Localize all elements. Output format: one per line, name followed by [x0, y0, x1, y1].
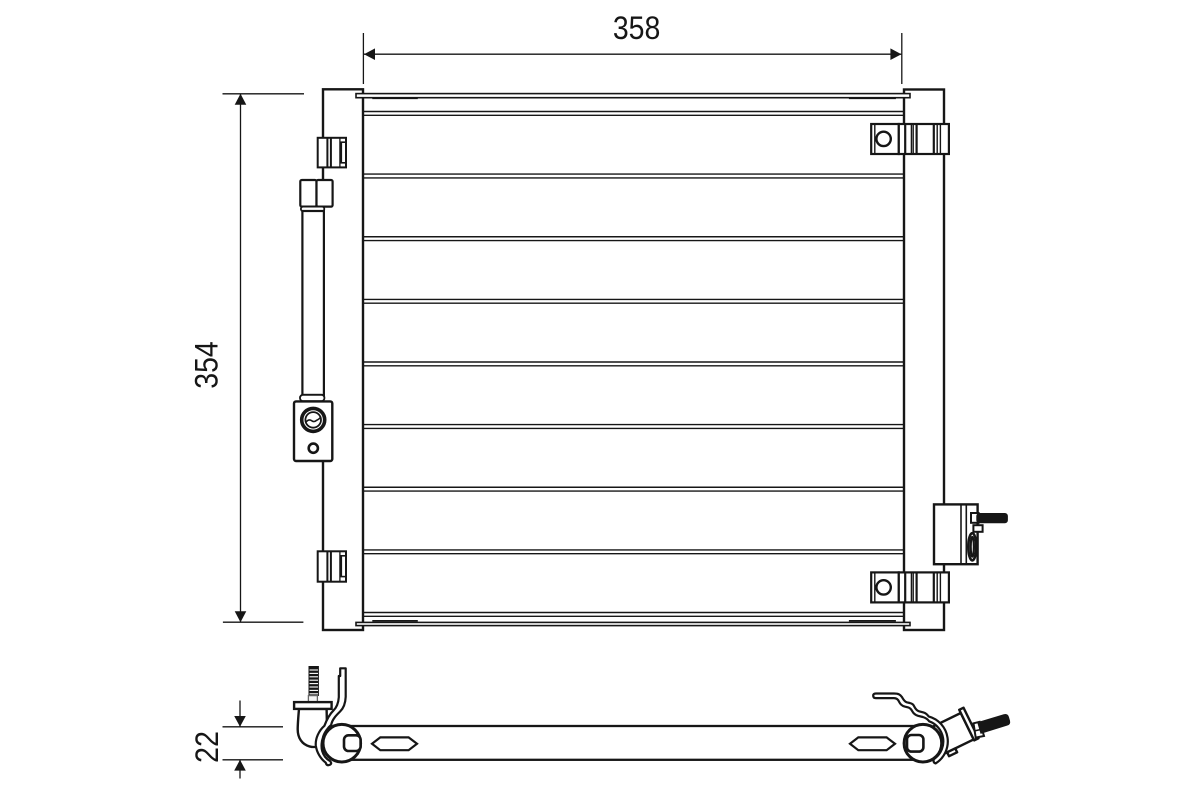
svg-text:354: 354: [189, 341, 225, 389]
svg-text:22: 22: [189, 731, 225, 763]
svg-text:358: 358: [613, 10, 661, 46]
